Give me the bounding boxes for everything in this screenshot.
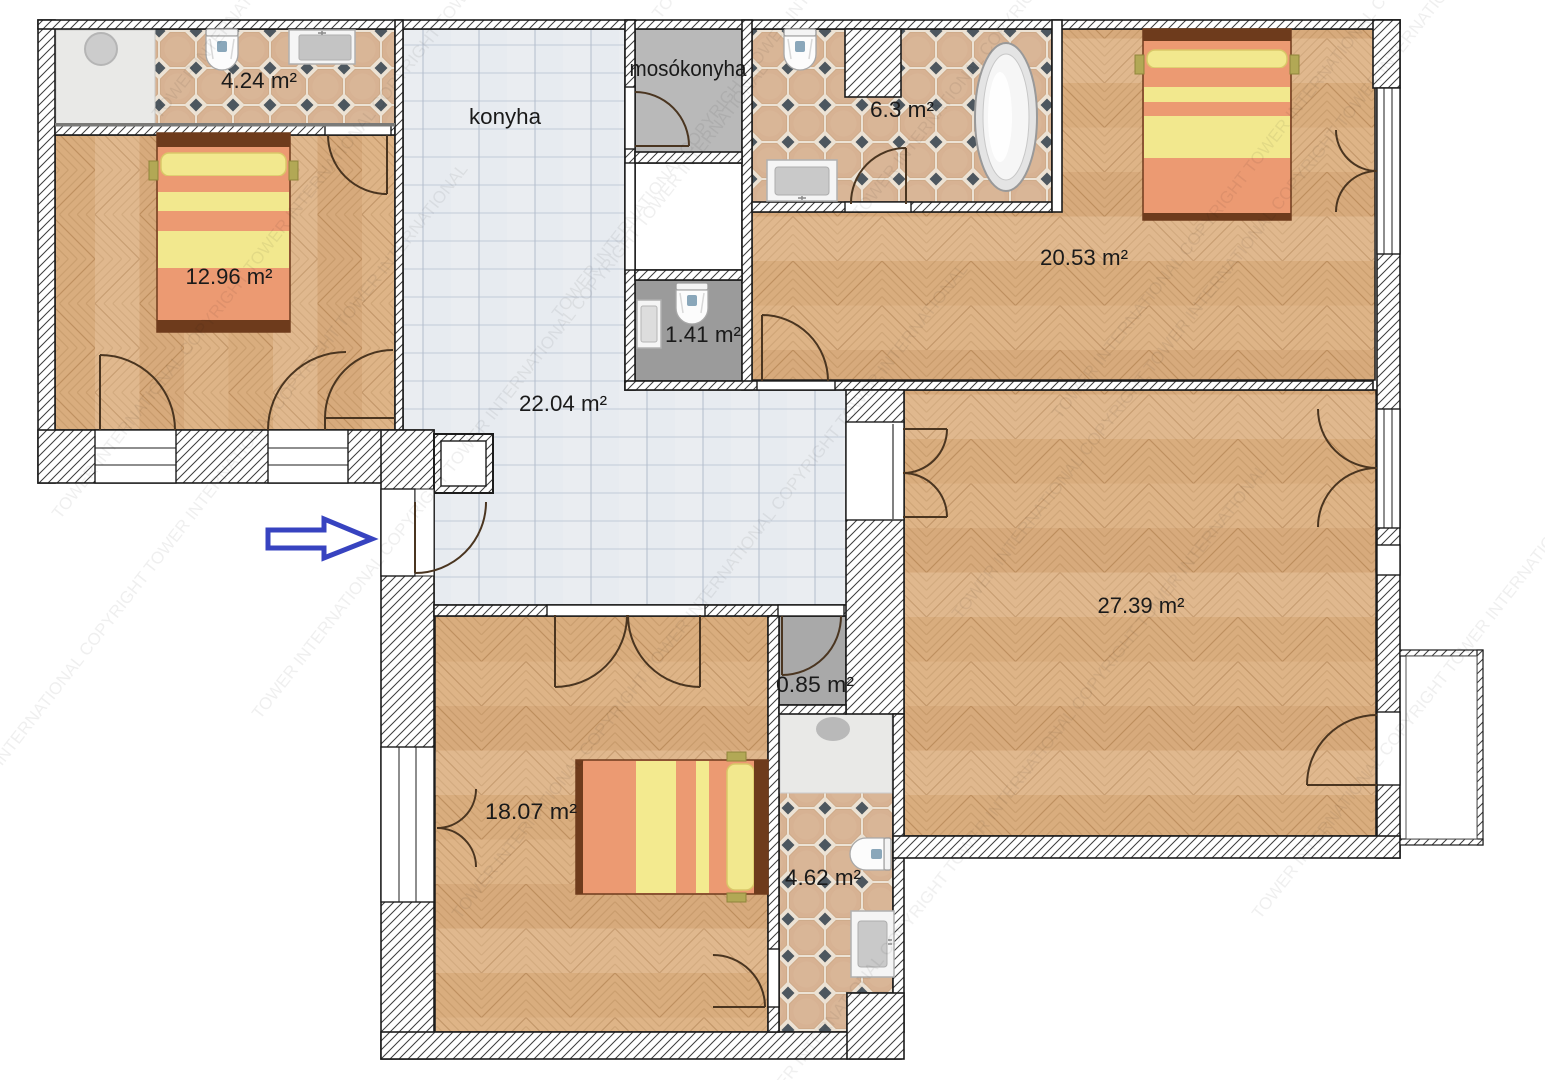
- svg-text:22.04 m²: 22.04 m²: [519, 391, 607, 416]
- svg-text:18.07 m²: 18.07 m²: [485, 799, 577, 824]
- svg-text:0.85 m²: 0.85 m²: [776, 672, 854, 697]
- svg-text:4.62 m²: 4.62 m²: [785, 865, 861, 890]
- svg-text:6.3 m²: 6.3 m²: [870, 97, 934, 122]
- svg-text:mosókonyha: mosókonyha: [630, 56, 748, 81]
- svg-text:1.41 m²: 1.41 m²: [665, 322, 741, 347]
- svg-text:27.39 m²: 27.39 m²: [1098, 593, 1185, 618]
- svg-text:konyha: konyha: [469, 104, 542, 129]
- svg-text:12.96 m²: 12.96 m²: [186, 264, 273, 289]
- svg-text:20.53 m²: 20.53 m²: [1040, 245, 1128, 270]
- svg-text:4.24 m²: 4.24 m²: [221, 68, 297, 93]
